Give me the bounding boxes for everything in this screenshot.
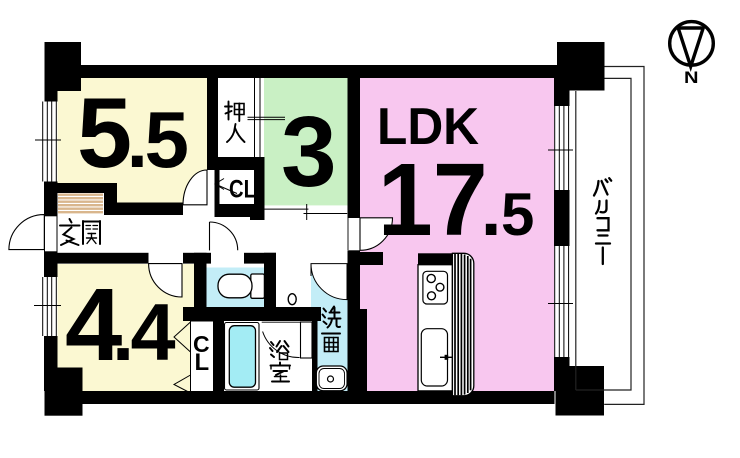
svg-text:L: L [195, 349, 210, 376]
svg-text:5: 5 [501, 181, 534, 248]
svg-text:.: . [481, 167, 502, 251]
svg-text:CL: CL [229, 176, 256, 204]
svg-text:5: 5 [77, 77, 132, 188]
svg-text:3: 3 [281, 96, 337, 208]
svg-text:N: N [684, 68, 699, 87]
svg-text:4: 4 [131, 288, 176, 378]
svg-text:5: 5 [145, 95, 190, 184]
svg-text:17: 17 [378, 142, 488, 257]
